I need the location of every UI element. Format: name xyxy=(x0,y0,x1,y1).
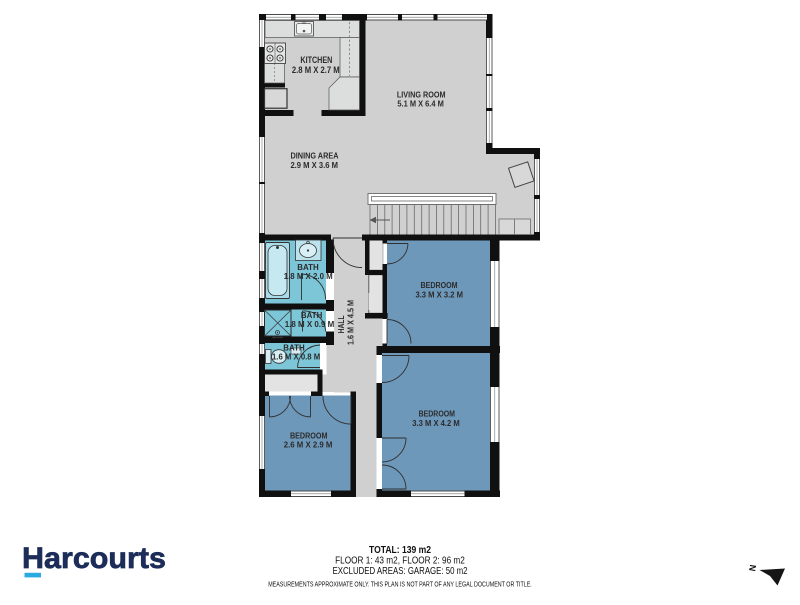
svg-text:KITCHEN: KITCHEN xyxy=(300,55,332,65)
svg-text:1.6 M X 0.8 M: 1.6 M X 0.8 M xyxy=(272,353,321,362)
svg-text:BATH: BATH xyxy=(301,311,323,320)
svg-text:BATH: BATH xyxy=(297,263,319,272)
svg-text:BEDROOM: BEDROOM xyxy=(419,410,456,419)
svg-text:3.3 M X 4.2 M: 3.3 M X 4.2 M xyxy=(412,419,460,428)
svg-text:BEDROOM: BEDROOM xyxy=(290,432,328,441)
svg-text:DINING AREA: DINING AREA xyxy=(291,151,339,161)
svg-text:2.8 M X 2.7 M: 2.8 M X 2.7 M xyxy=(292,65,340,75)
svg-text:BEDROOM: BEDROOM xyxy=(421,281,458,290)
svg-text:BATH: BATH xyxy=(283,343,305,352)
svg-text:FLOOR 1: 43 m2, FLOOR 2: 96 m2: FLOOR 1: 43 m2, FLOOR 2: 96 m2 xyxy=(335,556,465,567)
svg-text:5.1 M X 6.4 M: 5.1 M X 6.4 M xyxy=(397,98,443,108)
svg-text:MEASUREMENTS APPROXIMATE ONLY.: MEASUREMENTS APPROXIMATE ONLY. THIS PLAN… xyxy=(268,581,532,588)
svg-text:Harcourts: Harcourts xyxy=(22,542,166,575)
svg-text:EXCLUDED AREAS: GARAGE: 50 m2: EXCLUDED AREAS: GARAGE: 50 m2 xyxy=(333,566,468,577)
svg-text:1.6 M X 4.5 M: 1.6 M X 4.5 M xyxy=(346,300,355,345)
svg-text:2.9 M X 3.6 M: 2.9 M X 3.6 M xyxy=(290,160,338,170)
svg-text:1.8 M X 2.0 M: 1.8 M X 2.0 M xyxy=(284,272,333,281)
svg-text:1.8 M X 0.9 M: 1.8 M X 0.9 M xyxy=(285,320,335,329)
svg-text:2.6 M X 2.9 M: 2.6 M X 2.9 M xyxy=(284,441,333,450)
svg-text:3.3 M X 3.2 M: 3.3 M X 3.2 M xyxy=(415,291,463,300)
svg-text:HALL: HALL xyxy=(337,315,346,333)
svg-text:TOTAL: 139 m2: TOTAL: 139 m2 xyxy=(369,545,431,556)
